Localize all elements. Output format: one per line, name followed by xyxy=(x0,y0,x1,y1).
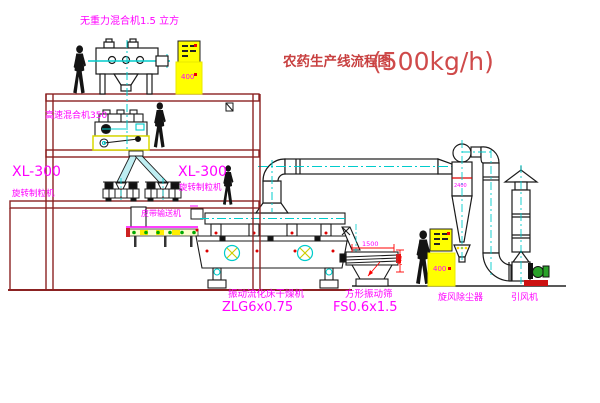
cabinet-2-value: 400 xyxy=(433,265,446,273)
floor-slab-top xyxy=(46,94,259,101)
cyclone-dim-label: 2400 xyxy=(454,183,467,189)
label-high-speed-mixer: 高速混合机350 xyxy=(45,109,107,121)
label-granulator-1-name: 旋转制粒机 xyxy=(12,188,55,199)
sieve-length-dim: 1500 xyxy=(362,240,379,248)
control-cabinet-2: 400 xyxy=(428,229,455,286)
exhaust-riser xyxy=(256,159,452,213)
label-dryer-name: 振动流化床干燥机 xyxy=(228,288,305,300)
wall-box xyxy=(226,103,233,111)
sieve-height-dim: 745 xyxy=(398,255,404,266)
diagram-capacity: (500kg/h) xyxy=(372,47,494,76)
pesticide-line-flow-diagram: 400 xyxy=(0,0,600,403)
flow-diagram-canvas: 400 xyxy=(0,0,600,403)
label-dryer-model: ZLG6x0.75 xyxy=(222,300,293,315)
fluid-bed-dryer xyxy=(196,213,348,288)
distribution-chute xyxy=(117,151,167,182)
label-granulator-1-model: XL-300 xyxy=(12,164,61,180)
label-gravity-free-mixer: 无重力混合机1.5 立方 xyxy=(80,14,179,27)
indicator-dot xyxy=(194,44,197,47)
vibrating-sieve xyxy=(340,252,401,286)
worker-figure-2 xyxy=(154,102,166,147)
cyclone-downpipe xyxy=(481,147,511,281)
cyclone-separator xyxy=(452,144,481,262)
label-fan: 引风机 xyxy=(511,291,538,303)
label-cyclone: 旋风除尘器 xyxy=(438,291,483,303)
label-belt-conveyor: 皮带输送机 xyxy=(141,208,181,218)
label-sieve-model: FS0.6x1.5 xyxy=(333,300,398,315)
label-granulator-2-model: XL-300 xyxy=(178,164,227,180)
label-sieve-name: 方形振动筛 xyxy=(345,288,393,300)
cabinet-1-value: 400 xyxy=(181,73,194,81)
belt-conveyor xyxy=(126,227,198,247)
worker-figure-1 xyxy=(73,45,86,93)
control-cabinet-1: 400 xyxy=(176,41,202,94)
floor-slab-mid xyxy=(46,150,259,157)
label-granulator-2-name: 旋转制粒机 xyxy=(179,182,222,193)
gravity-free-mixer xyxy=(88,39,170,94)
